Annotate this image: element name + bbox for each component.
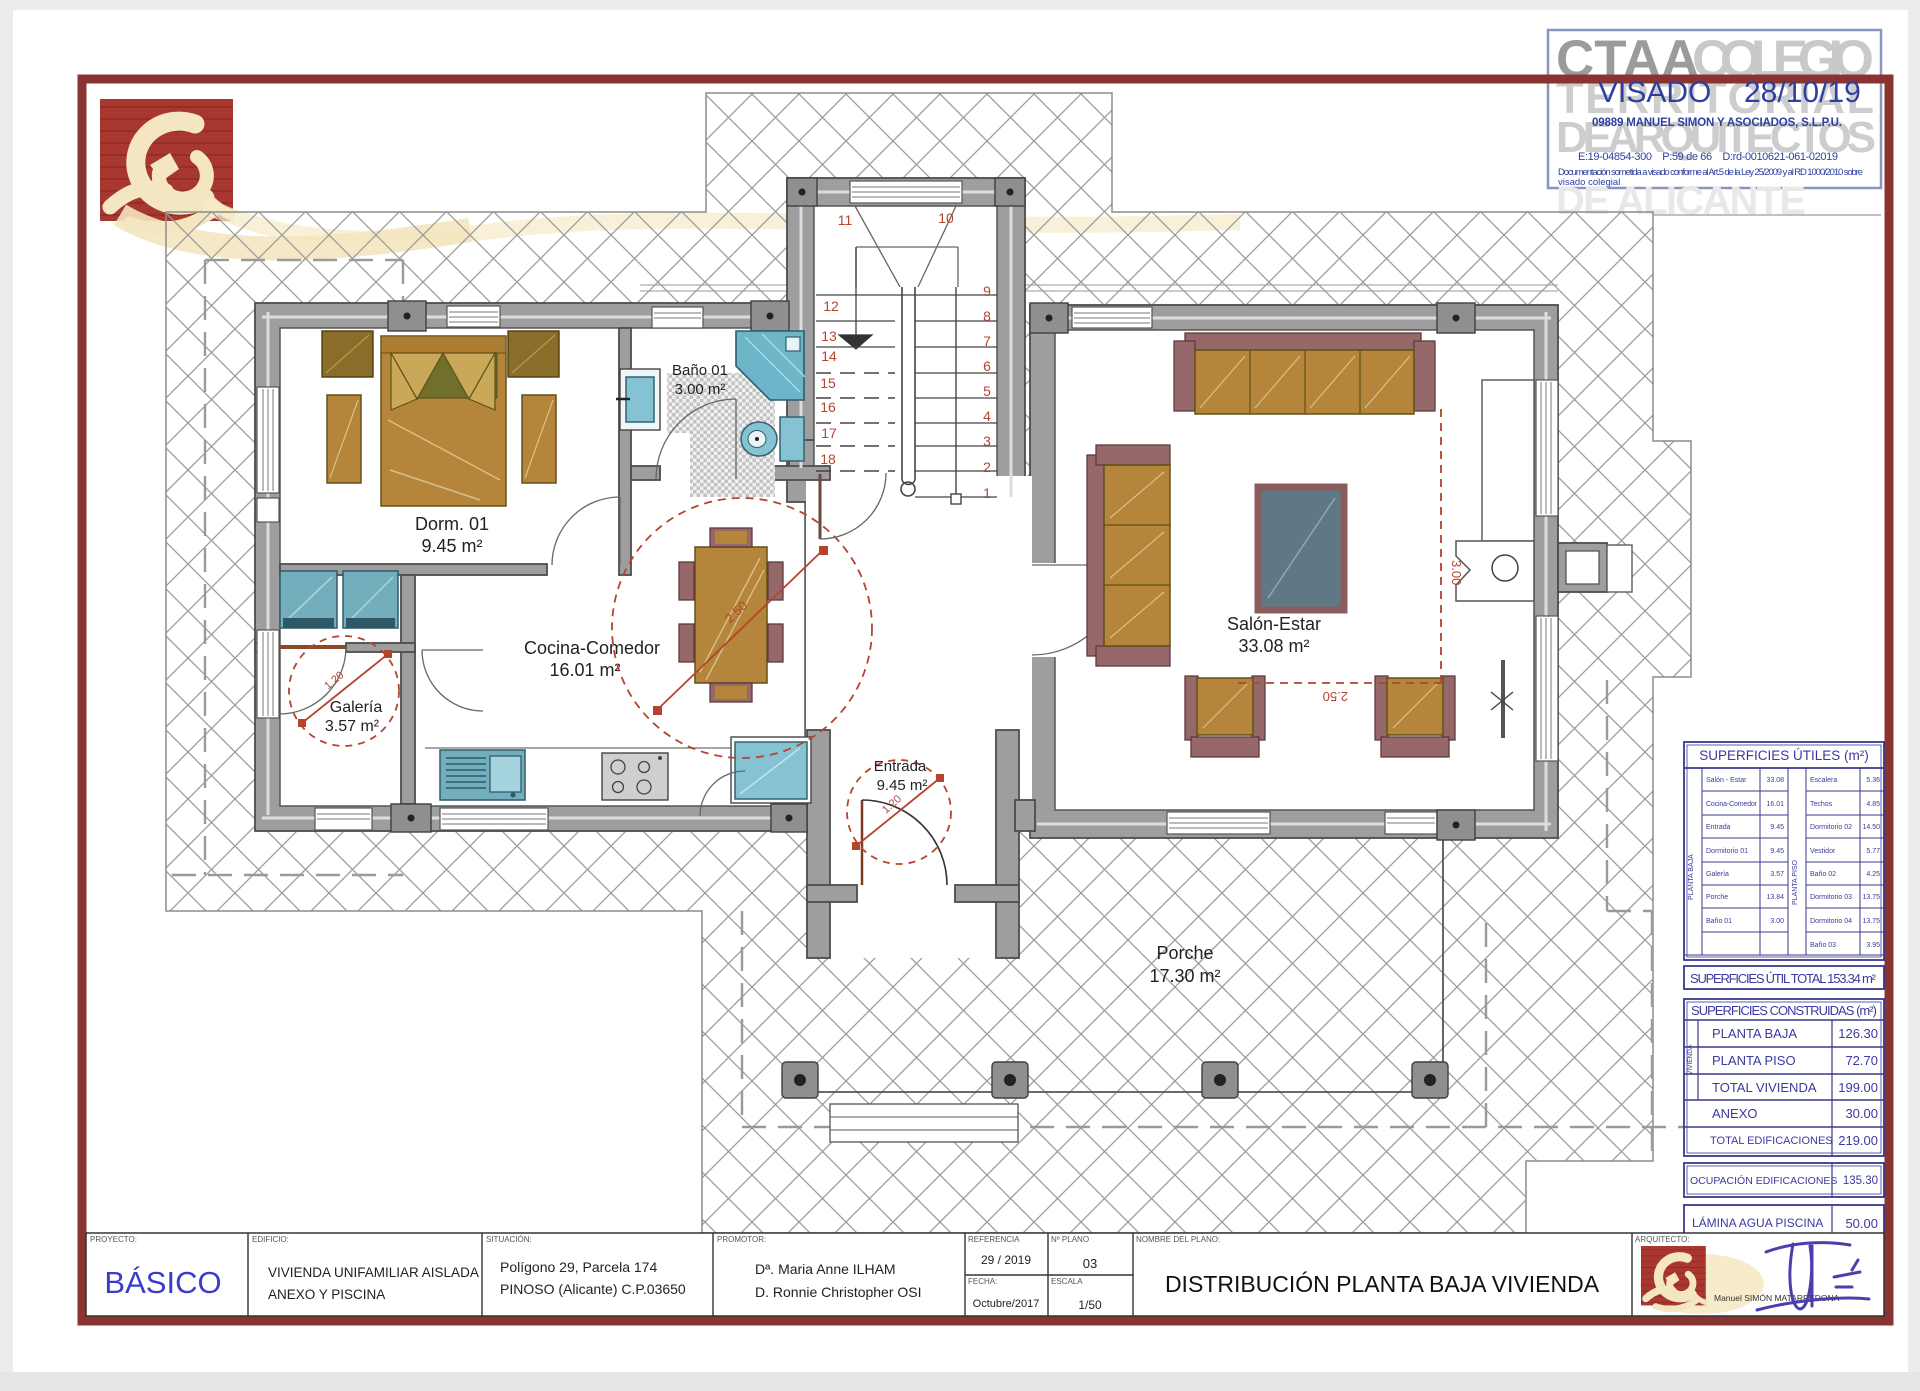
svg-text:PLANTA PISO: PLANTA PISO: [1712, 1053, 1796, 1068]
svg-text:5: 5: [983, 383, 991, 399]
svg-text:3.57 m²: 3.57 m²: [325, 718, 380, 735]
svg-text:2.50: 2.50: [1323, 689, 1348, 704]
svg-text:Polígono 29, Parcela 174: Polígono 29, Parcela 174: [500, 1259, 657, 1275]
svg-text:PROYECTO:: PROYECTO:: [90, 1235, 137, 1244]
svg-text:FECHA:: FECHA:: [968, 1277, 997, 1286]
svg-text:Dormitorio 03: Dormitorio 03: [1810, 894, 1852, 901]
svg-text:09889 MANUEL SIMON Y ASOCIADOS: 09889 MANUEL SIMON Y ASOCIADOS, S.L.P.U.: [1592, 117, 1842, 129]
svg-text:Octubre/2017: Octubre/2017: [973, 1298, 1040, 1310]
svg-text:NOMBRE DEL PLANO:: NOMBRE DEL PLANO:: [1136, 1235, 1220, 1244]
svg-text:13.75: 13.75: [1862, 894, 1880, 901]
svg-text:Baño 01: Baño 01: [1706, 918, 1732, 925]
svg-text:Porche: Porche: [1156, 943, 1213, 963]
svg-text:17.30 m²: 17.30 m²: [1149, 966, 1220, 986]
svg-text:LÁMINA AGUA PISCINA: LÁMINA AGUA PISCINA: [1692, 1215, 1823, 1230]
svg-text:Entrada: Entrada: [874, 758, 927, 775]
svg-text:13: 13: [821, 328, 837, 344]
svg-text:6: 6: [983, 358, 991, 374]
svg-text:14: 14: [821, 348, 837, 364]
svg-text:03: 03: [1083, 1256, 1097, 1271]
svg-text:E:19-04854-300 P:59 de 66: E:19-04854-300 P:59 de 66 D:rd-0010621-0…: [1578, 151, 1838, 163]
svg-text:Dª. Maria Anne ILHAM: Dª. Maria Anne ILHAM: [755, 1261, 896, 1277]
svg-text:VIVIENDA UNIFAMILIAR AISLADA: VIVIENDA UNIFAMILIAR AISLADA: [268, 1265, 479, 1280]
svg-text:3.57: 3.57: [1770, 871, 1784, 878]
svg-text:OCUPACIÓN EDIFICACIONES: OCUPACIÓN EDIFICACIONES: [1690, 1174, 1837, 1187]
svg-text:ARQUITECTO:: ARQUITECTO:: [1635, 1235, 1690, 1244]
svg-text:SUPERFICIES CONSTRUIDAS (m²): SUPERFICIES CONSTRUIDAS (m²): [1691, 1003, 1877, 1018]
svg-text:REFERENCIA: REFERENCIA: [968, 1235, 1020, 1244]
svg-text:TOTAL VIVIENDA: TOTAL VIVIENDA: [1712, 1080, 1817, 1095]
svg-text:33.08 m²: 33.08 m²: [1238, 636, 1309, 656]
svg-text:EDIFICIO:: EDIFICIO:: [252, 1235, 289, 1244]
svg-text:3.00 m²: 3.00 m²: [675, 381, 726, 398]
svg-text:PLANTA BAJA: PLANTA BAJA: [1712, 1026, 1797, 1041]
svg-text:ANEXO: ANEXO: [1712, 1106, 1758, 1121]
svg-text:BÁSICO: BÁSICO: [104, 1265, 221, 1300]
svg-text:2: 2: [983, 459, 991, 475]
svg-text:PLANTA PISO: PLANTA PISO: [1792, 859, 1799, 905]
svg-text:13.75: 13.75: [1862, 918, 1880, 925]
svg-text:1: 1: [983, 485, 991, 501]
svg-text:5.77: 5.77: [1866, 848, 1880, 855]
svg-text:4.85: 4.85: [1866, 801, 1880, 808]
svg-text:Baño 02: Baño 02: [1810, 871, 1836, 878]
svg-text:SUPERFICIES ÚTILES (m²): SUPERFICIES ÚTILES (m²): [1699, 748, 1869, 763]
svg-text:Cocina-Comedor: Cocina-Comedor: [524, 638, 660, 658]
svg-text:VISADO: VISADO: [1598, 76, 1711, 109]
svg-text:Baño 01: Baño 01: [672, 362, 728, 379]
svg-text:Vestidor: Vestidor: [1810, 848, 1836, 855]
svg-text:PROMOTOR:: PROMOTOR:: [717, 1235, 766, 1244]
svg-text:3.00: 3.00: [1449, 560, 1464, 585]
svg-text:16: 16: [820, 399, 836, 415]
svg-text:Techos: Techos: [1810, 801, 1833, 808]
svg-text:12: 12: [823, 298, 839, 314]
svg-text:9: 9: [983, 283, 991, 299]
svg-text:Dormitorio 01: Dormitorio 01: [1706, 848, 1748, 855]
svg-text:VIVIENDA: VIVIENDA: [1687, 1044, 1694, 1075]
svg-text:SITUACIÓN:: SITUACIÓN:: [486, 1235, 532, 1244]
svg-text:DISTRIBUCIÓN PLANTA BAJA VIVIE: DISTRIBUCIÓN PLANTA BAJA VIVIENDA: [1165, 1271, 1600, 1297]
svg-text:16.01 m²: 16.01 m²: [549, 660, 620, 680]
svg-text:135.30: 135.30: [1843, 1175, 1878, 1187]
svg-text:Galería: Galería: [330, 699, 383, 716]
svg-text:10: 10: [938, 210, 954, 226]
svg-text:Dormitorio 04: Dormitorio 04: [1810, 918, 1852, 925]
svg-text:Galería: Galería: [1706, 871, 1729, 878]
svg-text:3.95: 3.95: [1866, 942, 1880, 949]
svg-text:14.50: 14.50: [1862, 824, 1880, 831]
svg-text:PLANTA BAJA: PLANTA BAJA: [1688, 854, 1695, 900]
svg-text:17: 17: [821, 425, 837, 441]
svg-text:1/50: 1/50: [1078, 1298, 1102, 1312]
svg-text:SUPERFICIES ÚTIL TOTAL 153.34: SUPERFICIES ÚTIL TOTAL 153.34 m²: [1690, 971, 1877, 986]
svg-text:5.36: 5.36: [1866, 777, 1880, 784]
svg-text:ANEXO Y PISCINA: ANEXO Y PISCINA: [268, 1287, 385, 1302]
svg-text:18: 18: [820, 451, 836, 467]
svg-text:15: 15: [820, 375, 836, 391]
svg-text:30.00: 30.00: [1845, 1106, 1878, 1121]
svg-text:72.70: 72.70: [1845, 1053, 1878, 1068]
svg-text:4: 4: [983, 408, 991, 424]
svg-text:4.25: 4.25: [1866, 871, 1880, 878]
svg-text:11: 11: [838, 212, 853, 228]
svg-text:126.30: 126.30: [1838, 1026, 1878, 1041]
svg-text:29 / 2019: 29 / 2019: [981, 1253, 1031, 1267]
svg-text:219.00: 219.00: [1838, 1133, 1878, 1148]
svg-text:8: 8: [983, 308, 991, 324]
svg-text:Porche: Porche: [1706, 894, 1728, 901]
svg-text:Dormitorio 02: Dormitorio 02: [1810, 824, 1852, 831]
svg-text:D. Ronnie Christopher OSI: D. Ronnie Christopher OSI: [755, 1284, 922, 1300]
svg-text:PINOSO (Alicante) C.P.03650: PINOSO (Alicante) C.P.03650: [500, 1281, 686, 1297]
svg-text:199.00: 199.00: [1838, 1080, 1878, 1095]
svg-text:28/10/19: 28/10/19: [1744, 76, 1861, 109]
svg-text:9.45 m²: 9.45 m²: [877, 777, 928, 794]
svg-text:ESCALA: ESCALA: [1051, 1277, 1083, 1286]
svg-text:3: 3: [983, 433, 991, 449]
svg-text:visado colegial: visado colegial: [1558, 177, 1620, 188]
svg-text:TOTAL EDIFICACIONES: TOTAL EDIFICACIONES: [1710, 1135, 1833, 1147]
svg-text:9.45: 9.45: [1770, 824, 1784, 831]
svg-text:7: 7: [983, 333, 991, 349]
svg-text:Salón - Estar: Salón - Estar: [1706, 777, 1747, 784]
svg-text:Escalera: Escalera: [1810, 777, 1837, 784]
svg-text:9.45 m²: 9.45 m²: [421, 536, 482, 556]
svg-text:Baño 03: Baño 03: [1810, 942, 1836, 949]
svg-text:3.00: 3.00: [1770, 918, 1784, 925]
svg-text:13.84: 13.84: [1766, 894, 1784, 901]
svg-text:Dorm. 01: Dorm. 01: [415, 514, 489, 534]
svg-text:9.45: 9.45: [1770, 848, 1784, 855]
svg-text:33.08: 33.08: [1766, 777, 1784, 784]
svg-text:Entrada: Entrada: [1706, 824, 1731, 831]
svg-text:50.00: 50.00: [1845, 1216, 1878, 1231]
svg-text:16.01: 16.01: [1766, 801, 1784, 808]
svg-text:Nº PLANO: Nº PLANO: [1051, 1235, 1089, 1244]
svg-text:Cocina-Comedor: Cocina-Comedor: [1706, 801, 1758, 808]
svg-text:Salón-Estar: Salón-Estar: [1227, 614, 1321, 634]
